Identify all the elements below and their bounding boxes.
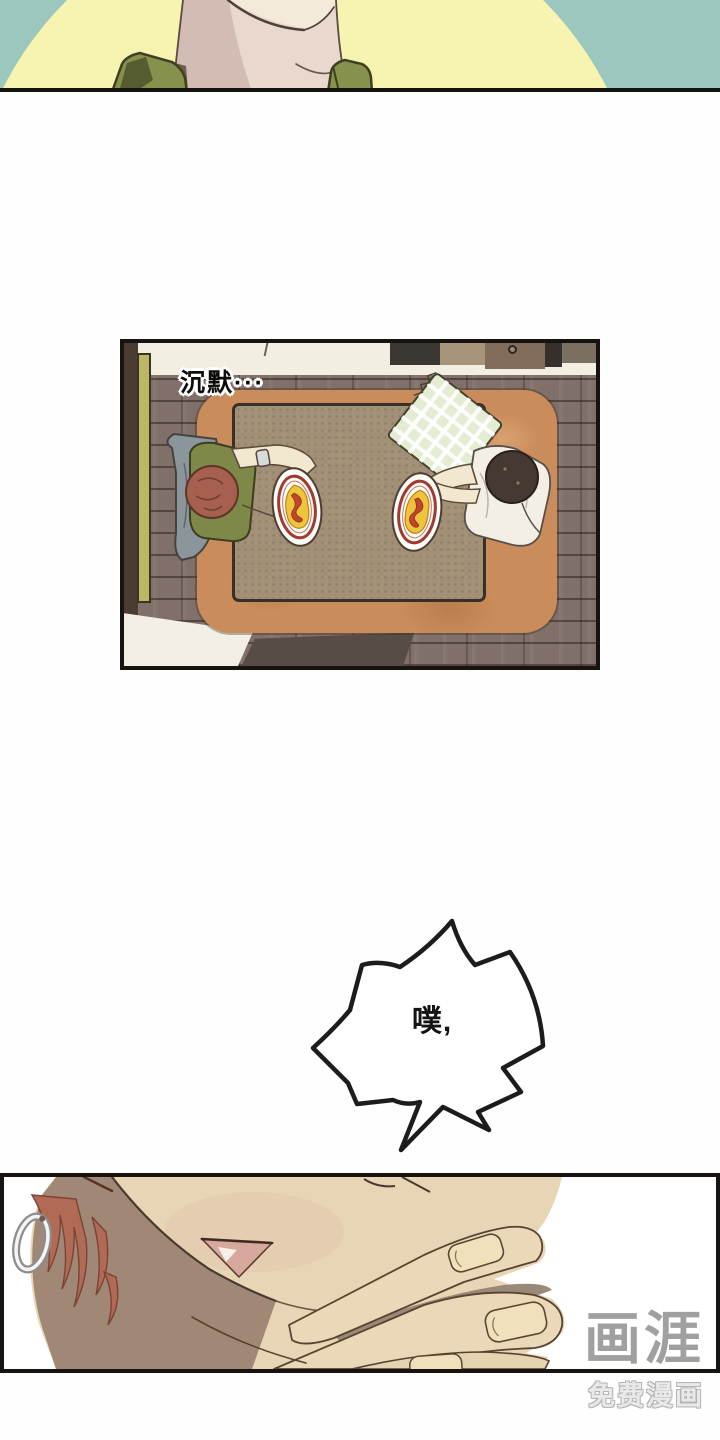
caption-silence: 沉默··· [180,363,265,399]
watermark-tagline: 免费漫画 [0,1374,704,1413]
head-right [486,451,538,503]
burst-text: 噗, [290,996,574,1040]
panel-closeup [0,1173,720,1373]
panel-dining: 沉默··· [120,339,600,670]
speech-burst: 噗, [290,900,570,1170]
plate-left [268,465,326,549]
top-panel-art [0,0,720,92]
closeup-art [4,1177,716,1369]
panel-top [0,0,720,92]
wristwatch [256,449,271,467]
